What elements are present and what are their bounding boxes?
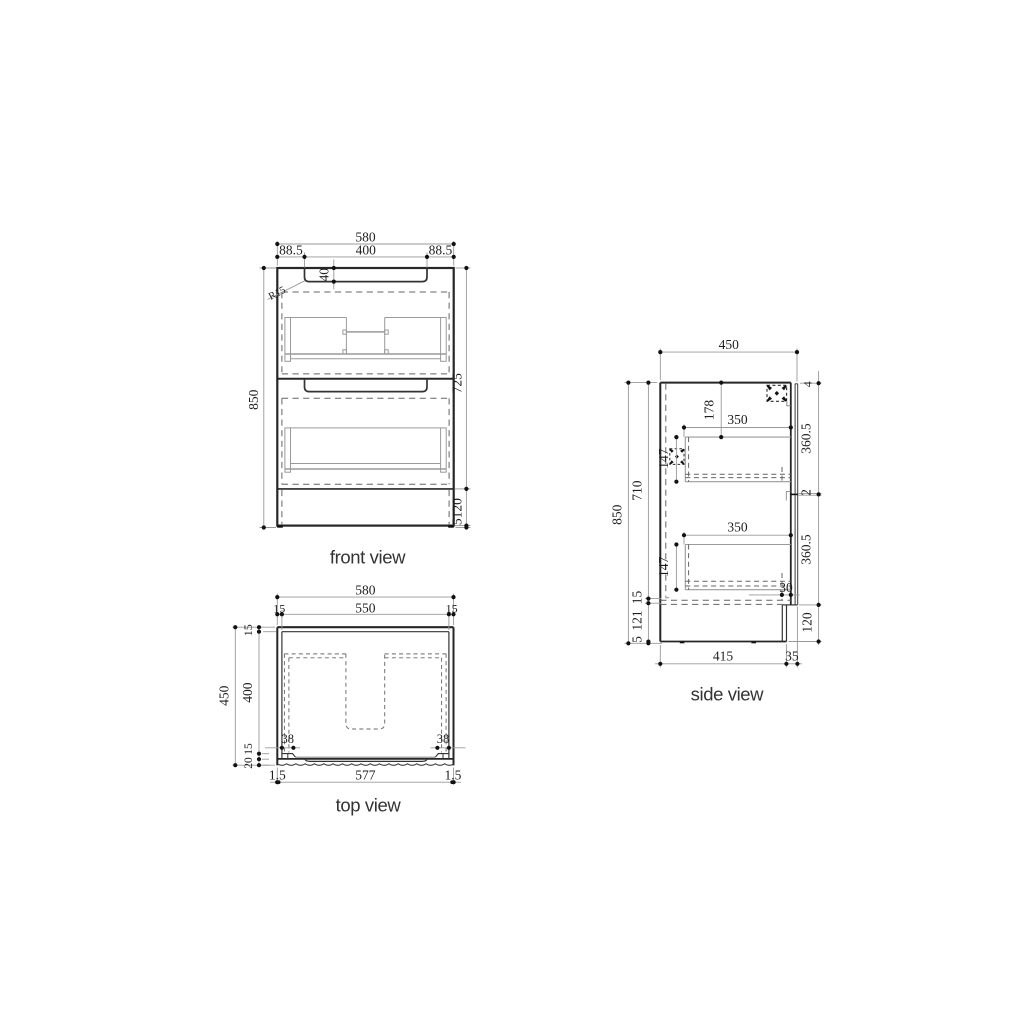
svg-text:350: 350	[727, 520, 748, 535]
svg-text:450: 450	[719, 337, 740, 352]
svg-text:1.5: 1.5	[444, 768, 461, 783]
svg-text:88.5: 88.5	[429, 242, 453, 257]
svg-text:88.5: 88.5	[279, 242, 303, 257]
svg-text:30: 30	[779, 580, 793, 595]
svg-text:178: 178	[702, 400, 717, 421]
svg-text:1.5: 1.5	[269, 768, 286, 783]
svg-text:20: 20	[243, 757, 255, 769]
svg-text:side view: side view	[691, 683, 765, 704]
svg-text:40: 40	[316, 268, 331, 282]
svg-text:580: 580	[355, 583, 376, 598]
svg-text:850: 850	[246, 389, 261, 410]
svg-text:15: 15	[241, 624, 255, 636]
svg-text:4: 4	[801, 381, 815, 387]
svg-text:550: 550	[355, 600, 376, 615]
svg-text:147: 147	[656, 448, 671, 469]
svg-text:15: 15	[630, 591, 645, 605]
svg-text:35: 35	[785, 648, 799, 663]
svg-text:121: 121	[630, 610, 645, 630]
svg-text:450: 450	[217, 685, 232, 706]
svg-text:360.5: 360.5	[799, 423, 814, 454]
svg-text:400: 400	[240, 682, 255, 703]
svg-text:15: 15	[273, 601, 285, 615]
svg-text:360.5: 360.5	[799, 534, 814, 565]
svg-text:front view: front view	[330, 547, 406, 568]
svg-text:5: 5	[449, 518, 464, 525]
svg-text:710: 710	[630, 480, 645, 501]
svg-text:400: 400	[356, 242, 377, 257]
svg-text:147: 147	[656, 557, 671, 578]
svg-text:577: 577	[355, 768, 376, 783]
svg-text:38: 38	[282, 732, 295, 746]
svg-text:38: 38	[437, 732, 450, 746]
svg-text:15: 15	[446, 601, 458, 615]
svg-text:15: 15	[243, 743, 255, 755]
svg-text:415: 415	[713, 648, 734, 663]
svg-text:850: 850	[610, 504, 625, 525]
svg-text:2: 2	[799, 489, 814, 496]
svg-text:725: 725	[449, 373, 464, 394]
svg-text:120: 120	[449, 498, 464, 519]
svg-text:120: 120	[800, 612, 815, 633]
svg-text:5: 5	[630, 636, 645, 643]
svg-text:350: 350	[727, 412, 748, 427]
svg-text:top view: top view	[336, 795, 402, 816]
